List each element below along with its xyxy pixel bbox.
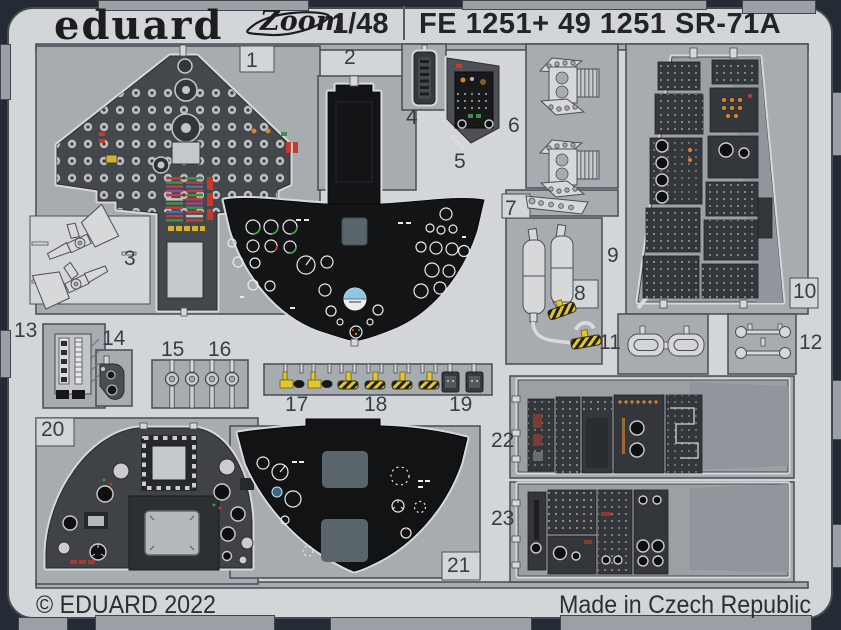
part-23-console [512,484,788,576]
zoom-logo: Zoom [240,6,340,44]
part-number: 2 [344,46,356,70]
attitude-indicator [344,288,366,310]
viewfinder [142,436,196,490]
part-number: 7 [505,197,517,221]
part-number: 19 [449,393,472,417]
part-number: 9 [607,244,619,268]
part-number: 12 [799,331,822,355]
part-number: 8 [574,282,586,306]
header-divider [403,6,405,40]
eduard-logo: eduard [54,2,223,49]
scale-label: 1/48 [332,8,388,41]
part-4-switch-strip [414,45,435,104]
part-22-console [512,380,788,473]
part-number: 1 [246,49,258,73]
part-number: 23 [491,507,514,531]
product-code: FE 1251+ 49 1251 SR-71A [419,8,781,41]
part-number: 18 [364,393,387,417]
part-number: 3 [124,247,136,271]
part-5-side-panel [447,58,499,150]
made-in-text: Made in Czech Republic [559,591,811,620]
part-number: 17 [285,393,308,417]
part-number: 5 [454,150,466,174]
part-number: 15 [161,338,184,362]
part-9-10-side-console [638,48,783,308]
part-number: 20 [41,418,64,442]
part-number: 4 [406,106,418,130]
svg-text:Zoom: Zoom [259,6,340,37]
part-number: 6 [508,114,520,138]
part-number: 10 [793,280,816,304]
part-number: 21 [447,554,470,578]
part-number: 22 [491,429,514,453]
etched-fret-card: eduard Zoom 1/48 FE 1251+ 49 1251 SR-71A… [0,0,841,630]
part-number: 11 [599,331,621,355]
part-number: 16 [208,338,231,362]
copyright-text: © EDUARD 2022 [36,591,216,620]
part-number: 14 [102,327,125,351]
part-number: 13 [14,319,37,343]
central-screen [129,496,219,570]
fret-artwork [0,0,841,630]
